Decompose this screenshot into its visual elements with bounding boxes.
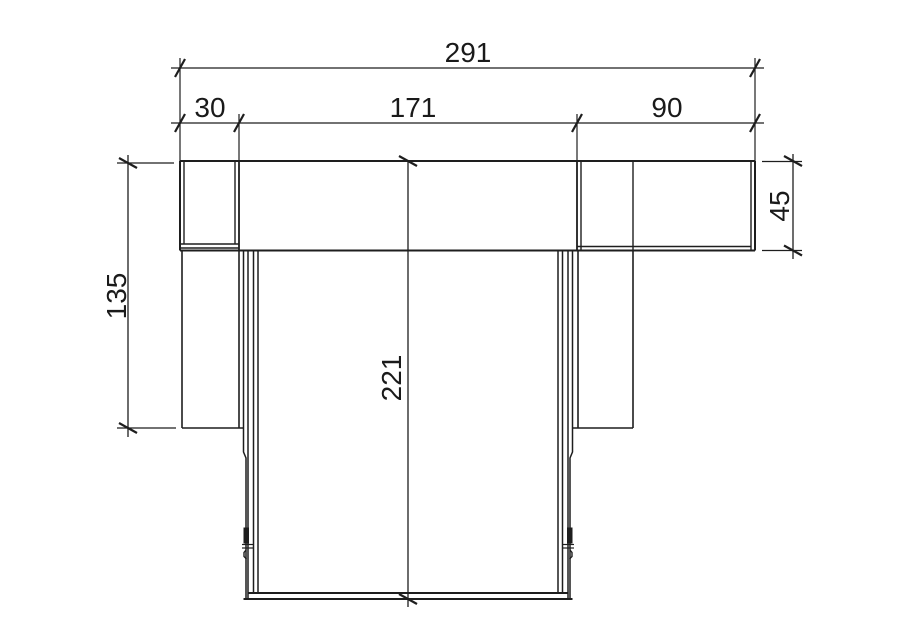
left-drop-panel-profile: [182, 251, 244, 429]
dim-label-overall-depth: 221: [376, 355, 407, 402]
dimension-labels: 291 30 171 90 135 45 221: [101, 37, 795, 401]
channel-section-drawing: 291 30 171 90 135 45 221: [0, 0, 900, 643]
dim-label-side-depth: 135: [101, 273, 132, 320]
dim-label-segment-middle: 171: [390, 92, 437, 123]
right-drop-panel-profile: [572, 251, 633, 429]
technical-drawing-canvas: 291 30 171 90 135 45 221: [0, 0, 900, 643]
dim-label-flange-height: 45: [764, 190, 795, 221]
top-flange-profile: [180, 161, 755, 251]
dim-label-segment-right: 90: [651, 92, 682, 123]
dim-label-total-width: 291: [445, 37, 492, 68]
dim-label-segment-left: 30: [194, 92, 225, 123]
